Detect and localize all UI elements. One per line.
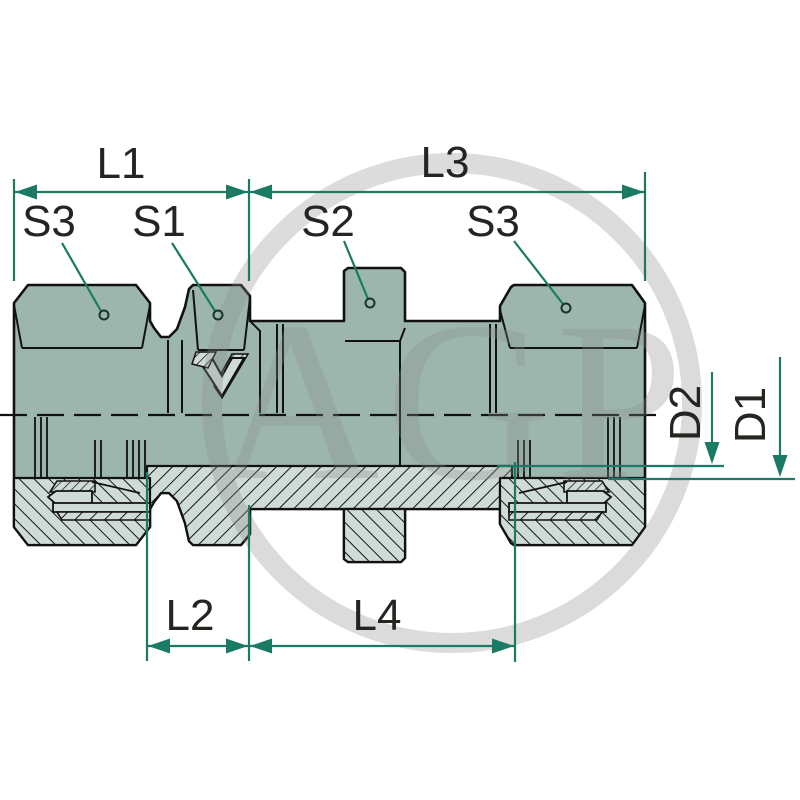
label-d1: D1	[726, 387, 775, 443]
technical-drawing-svg: AGP	[0, 0, 800, 800]
drawing-canvas: AGP	[0, 0, 800, 800]
label-l3: L3	[421, 138, 470, 187]
label-d2: D2	[661, 385, 710, 441]
watermark-text: AGP	[215, 276, 689, 528]
label-s2: S2	[301, 197, 355, 246]
label-s3-left: S3	[22, 197, 76, 246]
label-l4: L4	[353, 591, 402, 640]
label-l1: L1	[97, 139, 146, 188]
label-s1: S1	[132, 197, 186, 246]
label-l2: L2	[166, 591, 215, 640]
label-s3-right: S3	[466, 197, 520, 246]
